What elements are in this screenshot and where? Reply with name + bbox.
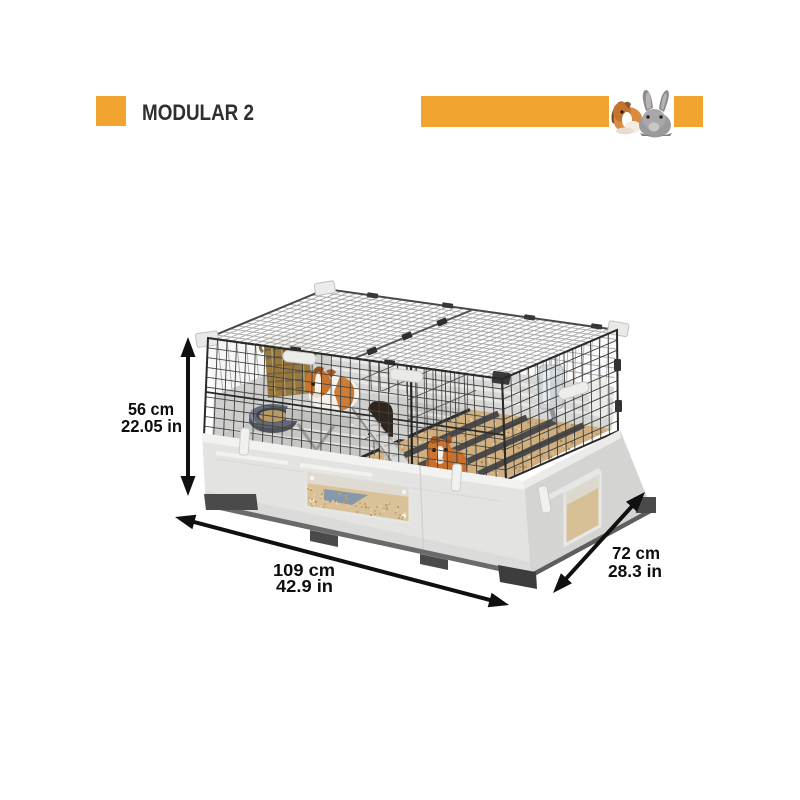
svg-text:72 cm: 72 cm: [612, 543, 660, 563]
svg-text:22.05 in: 22.05 in: [121, 416, 182, 436]
svg-text:28.3 in: 28.3 in: [608, 561, 662, 581]
svg-text:MODULAR 2: MODULAR 2: [142, 100, 254, 125]
svg-text:42.9 in: 42.9 in: [276, 576, 333, 596]
